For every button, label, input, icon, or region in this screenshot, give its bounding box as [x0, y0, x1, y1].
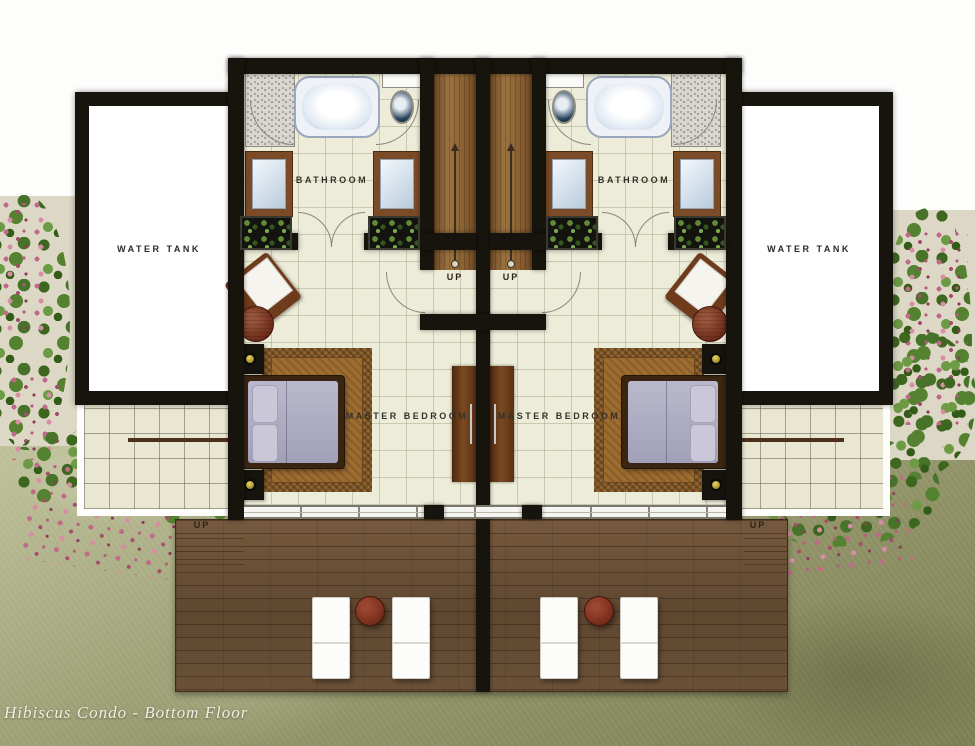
wardrobe-right-handle: [494, 404, 496, 444]
bathroom-right-label: BATHROOM: [556, 175, 712, 185]
wardrobe-left: [452, 366, 476, 482]
lamp-right-1: [710, 353, 722, 365]
bathtub-left-basin: [302, 84, 372, 130]
bed-left-pillow-1: [252, 385, 278, 423]
deck-table-right: [584, 596, 614, 626]
lamp-right-2: [710, 479, 722, 491]
toilet-left-cistern: [382, 72, 422, 88]
planter-left-2: [368, 216, 420, 250]
bathtub-right: [586, 76, 672, 138]
bed-right-pillow-2: [690, 424, 716, 462]
bathroom-left-label: BATHROOM: [254, 175, 410, 185]
patio-left-railing: [128, 438, 238, 442]
lamp-left-2: [244, 479, 256, 491]
water-tank-right-label: WATER TANK: [739, 244, 879, 254]
lounge-chair-right-2: [620, 597, 658, 679]
deck-steps-right: [744, 538, 787, 565]
side-table-right: [692, 306, 728, 342]
bathtub-right-basin: [594, 84, 664, 130]
deck-up-left-label: UP: [182, 520, 222, 530]
lounge-chair-left-1: [312, 597, 350, 679]
vine-left-flowers: [0, 200, 44, 335]
wardrobe-left-handle: [470, 404, 472, 444]
lounge-chair-right-1: [540, 597, 578, 679]
bedroom-left-label: MASTER BEDROOM: [330, 411, 484, 421]
lamp-left-1: [244, 353, 256, 365]
patio-right: [728, 396, 890, 516]
deck-steps-left: [176, 538, 244, 565]
planter-left-1: [240, 216, 292, 250]
wall-center-party: [476, 58, 490, 692]
water-tank-left-label: WATER TANK: [89, 244, 229, 254]
wall-left: [228, 58, 244, 520]
patio-left: [77, 396, 245, 516]
plan-caption: Hibiscus Condo - Bottom Floor: [4, 703, 248, 723]
toilet-right-cistern: [544, 72, 584, 88]
bedroom-window-band: [244, 505, 726, 519]
wall-right: [726, 58, 742, 520]
deck-table-left: [355, 596, 385, 626]
stair-up-right-label: UP: [490, 272, 532, 282]
floorplan-canvas: WATER TANK WATER TANK UP UP UP UP BATHRO…: [0, 0, 975, 746]
planter-right-1: [546, 216, 598, 250]
bathtub-left: [294, 76, 380, 138]
deck-up-right-label: UP: [738, 520, 778, 530]
wardrobe-right: [490, 366, 514, 482]
stair-landing-wall: [420, 314, 546, 330]
bed-right-pillow-1: [690, 385, 716, 423]
window-wall-stub-1: [424, 505, 444, 519]
bedroom-right-label: MASTER BEDROOM: [482, 411, 636, 421]
lounge-chair-left-2: [392, 597, 430, 679]
window-wall-stub-2: [522, 505, 542, 519]
bed-left-pillow-2: [252, 424, 278, 462]
patio-right-railing: [736, 438, 844, 442]
stair-up-left-label: UP: [434, 272, 476, 282]
planter-right-2: [674, 216, 726, 250]
